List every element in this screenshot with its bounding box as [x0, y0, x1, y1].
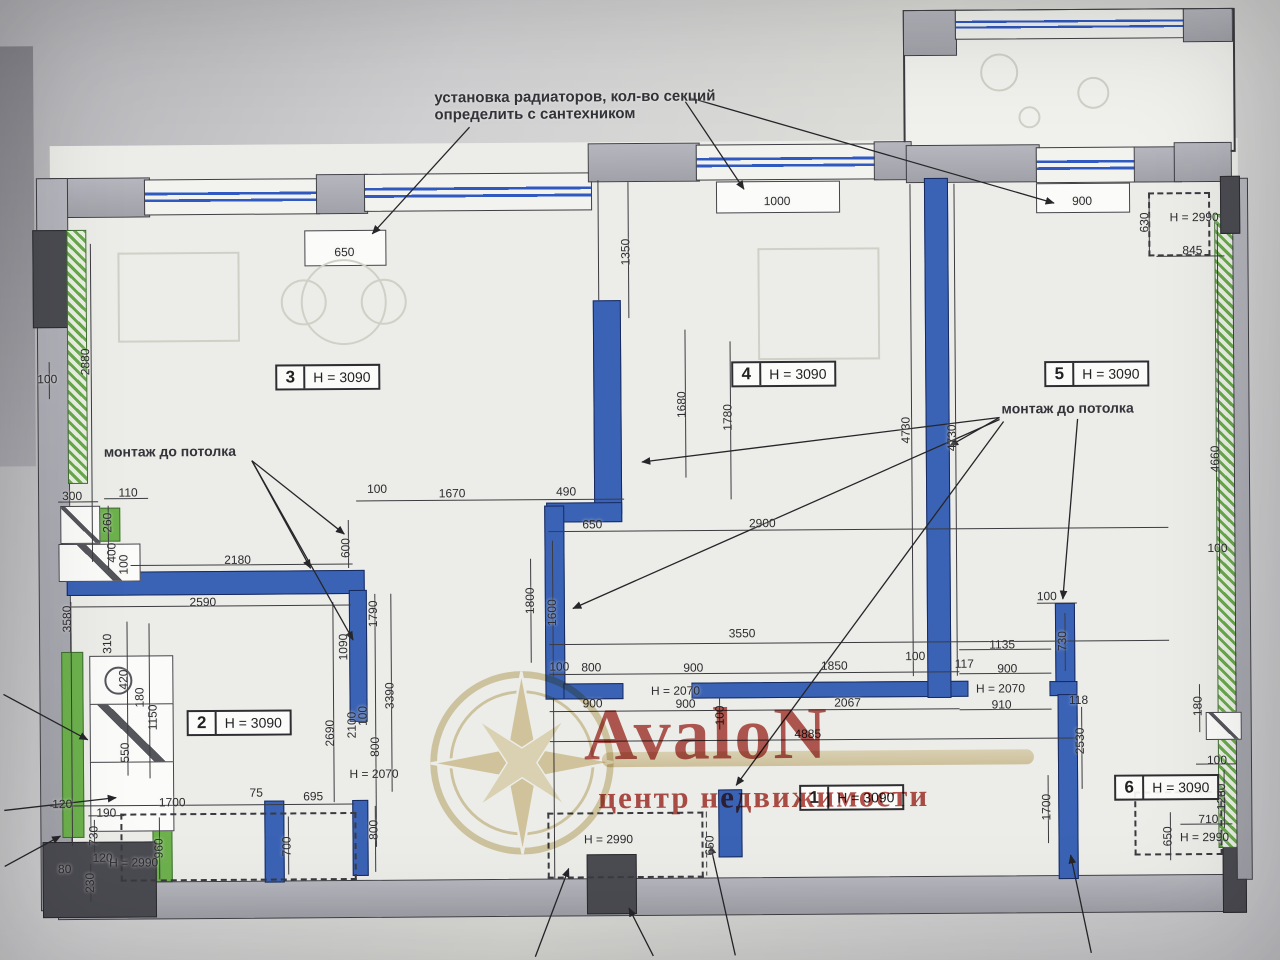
dimension-label: 600 [338, 538, 352, 558]
dimension-label: 650 [1160, 826, 1174, 846]
room-label-5: 5H = 3090 [1044, 360, 1149, 387]
dimension-label: 300 [62, 489, 82, 503]
dimension-label: 695 [303, 789, 323, 803]
dimension-label: 4730 [945, 424, 959, 451]
dimension-label: H = 2990 [1170, 210, 1219, 224]
dimension-label: 100 [905, 649, 925, 663]
dimension-label: 900 [997, 661, 1017, 675]
dimension-label: 310 [100, 634, 114, 654]
dimension-label: 180 [1191, 696, 1205, 716]
dimension-label: 3550 [729, 626, 756, 640]
room-label-2: 2H = 3090 [187, 709, 292, 736]
plan-sheet: установка радиаторов, кол-во секций опре… [0, 0, 1280, 960]
dimension-label: 650 [702, 835, 716, 855]
watermark-subtitle: центр недвижимости [598, 777, 1038, 816]
dimension-label: 4730 [899, 417, 913, 444]
dimension-label: 2180 [224, 553, 251, 567]
dimension-label: 100 [356, 706, 370, 726]
room-label-6: 6H = 3090 [1114, 774, 1219, 801]
dimension-label: 730 [86, 826, 100, 846]
dimension-label: 490 [556, 484, 576, 498]
dimension-label: 120 [52, 797, 72, 811]
dimension-label: H = 2070 [349, 767, 398, 781]
room-label-4: 4H = 3090 [731, 361, 836, 388]
dimension-label: 180 [132, 687, 146, 707]
dimension-label: 420 [116, 670, 130, 690]
dimension-label: H = 2990 [109, 855, 158, 869]
dimension-label: H = 2070 [976, 681, 1025, 695]
dimension-label: 100 [37, 372, 57, 386]
ceiling-mount-note-left: монтаж до потолка [104, 443, 236, 460]
dimension-label: 1800 [523, 587, 537, 614]
dimension-label: 4660 [1208, 446, 1222, 473]
dimension-label: 550 [118, 743, 132, 763]
dimension-label: 730 [1055, 631, 1069, 651]
dimension-label: 260 [100, 513, 114, 533]
dimension-label: 2530 [1073, 728, 1087, 755]
dimension-label: 1680 [674, 391, 688, 418]
dimension-label: 1850 [821, 659, 848, 673]
dimension-label: 1670 [439, 486, 466, 500]
dimension-label: 1700 [159, 795, 186, 809]
radiator-annotation-line2: определить с сантехником [434, 104, 715, 123]
radiator-annotation-line1: установка радиаторов, кол-во секций [434, 87, 715, 106]
room-number: 4 [733, 363, 761, 385]
dimension-label: 1790 [366, 600, 380, 627]
dimension-label: H = 2990 [1180, 830, 1229, 844]
dimension-label: 230 [83, 873, 97, 893]
dimension-label: 700 [279, 836, 293, 856]
dimension-label: 710 [1198, 812, 1218, 826]
dimension-label: 800 [366, 820, 380, 840]
dimension-label: 2690 [323, 720, 337, 747]
dimension-label: 630 [1137, 212, 1151, 232]
dimension-label: 100 [117, 555, 131, 575]
dimension-label: 2590 [189, 595, 216, 609]
dimension-label: 650 [334, 245, 354, 259]
dimension-label: 1150 [146, 704, 160, 730]
room-ceiling-height: H = 3090 [1144, 776, 1217, 799]
radiator-annotation: установка радиаторов, кол-во секций опре… [434, 87, 715, 123]
dimension-label: 900 [683, 661, 703, 675]
dimension-label: 1000 [764, 194, 791, 208]
room-number: 5 [1046, 363, 1074, 385]
dimension-label: 900 [1072, 194, 1092, 208]
dimension-label: 75 [249, 786, 262, 800]
dimension-label: 1780 [720, 404, 734, 431]
dimension-label: 3390 [382, 682, 396, 709]
dimension-label: 845 [1182, 243, 1202, 257]
dimension-label: 117 [955, 657, 974, 671]
room-ceiling-height: H = 3090 [305, 366, 378, 389]
dimension-label: 100 [1037, 589, 1057, 603]
room-number: 2 [189, 712, 217, 734]
watermark-brand: AvaloN [584, 695, 1041, 772]
dimension-label: 80 [58, 862, 71, 876]
dimension-label: 190 [96, 806, 116, 820]
dimension-label: 100 [367, 482, 387, 496]
dimension-label: 100 [1207, 541, 1227, 555]
room-label-3: 3H = 3090 [275, 364, 380, 391]
room-ceiling-height: H = 3090 [217, 711, 290, 734]
dimension-label: 118 [1069, 693, 1088, 707]
room-ceiling-height: H = 3090 [1074, 362, 1147, 385]
dimension-label: 100 [1207, 753, 1227, 767]
dimension-label: 110 [118, 486, 137, 500]
dimension-label: 800 [368, 737, 382, 757]
dimension-label: 3580 [60, 606, 74, 633]
dimension-label: 1135 [989, 637, 1015, 651]
floor-plan-photo: установка радиаторов, кол-во секций опре… [0, 0, 1280, 960]
room-number: 3 [277, 366, 305, 388]
dimension-label: 2900 [749, 516, 776, 530]
ceiling-mount-note-right: монтаж до потолка [1001, 400, 1133, 417]
dimension-label: 2880 [78, 348, 92, 375]
dimension-label: 1350 [618, 239, 632, 266]
room-ceiling-height: H = 3090 [761, 363, 834, 386]
dimension-label: 1700 [1039, 794, 1053, 821]
dimension-label: 1090 [336, 634, 350, 661]
room-number: 6 [1116, 776, 1144, 798]
dimension-label: 650 [582, 517, 602, 531]
dimension-label: 1600 [545, 599, 559, 626]
